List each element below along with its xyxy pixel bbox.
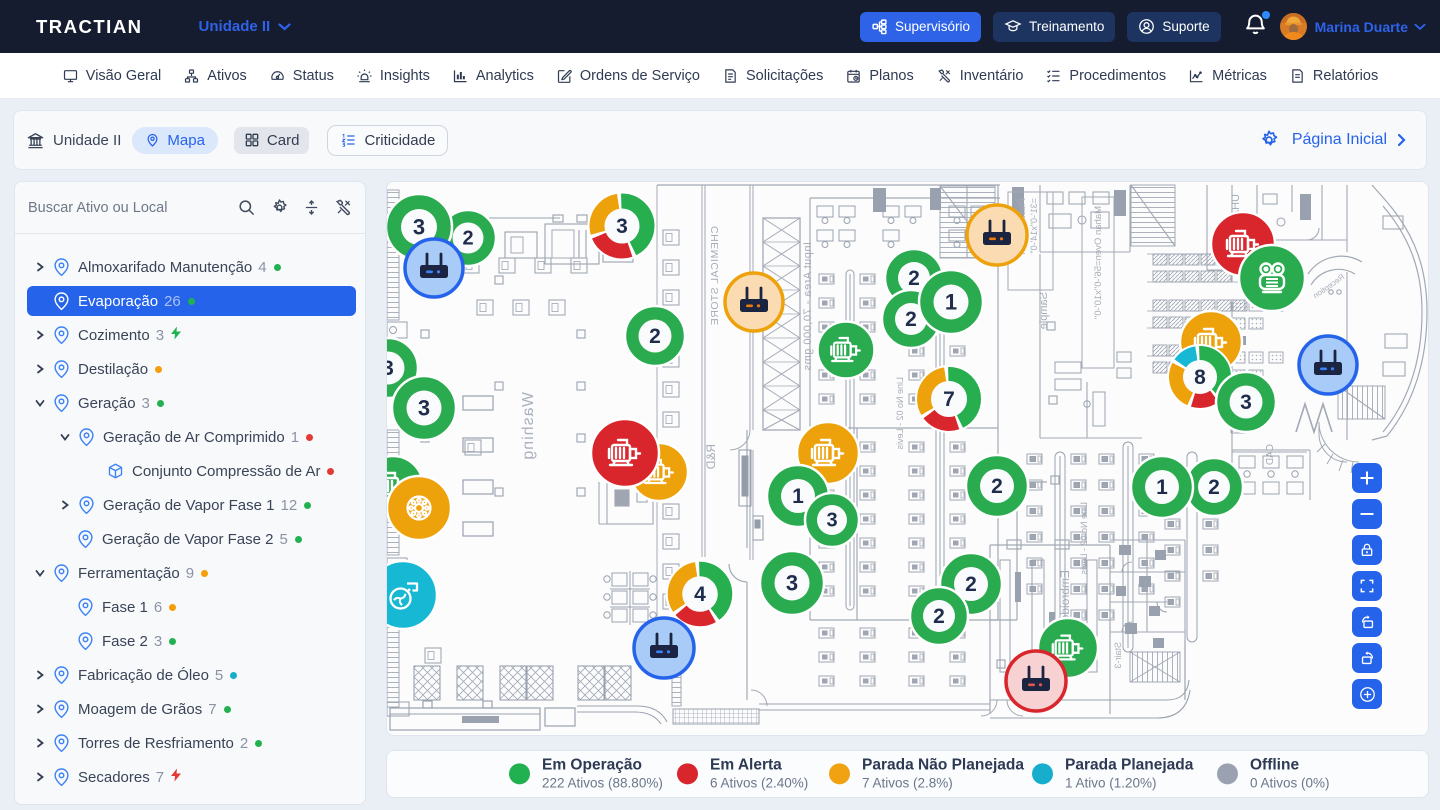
svg-text:2: 2 (905, 308, 917, 331)
svg-text:8: 8 (1194, 366, 1206, 389)
svg-text:3: 3 (413, 215, 425, 240)
svg-text:1: 1 (792, 485, 804, 508)
svg-text:2: 2 (991, 475, 1003, 498)
svg-text:R&D: R&D (704, 444, 718, 470)
svg-text:Input Area - 70,000 gms: Input Area - 70,000 gms (802, 242, 814, 371)
svg-text:3: 3 (418, 396, 430, 421)
svg-text:3: 3 (616, 215, 628, 238)
svg-text:Line No 02 - Levis: Line No 02 - Levis (895, 377, 905, 450)
svg-text:CHEMICAL STORE: CHEMICAL STORE (709, 226, 721, 326)
svg-text:Stair-3: Stair-3 (1113, 642, 1123, 669)
svg-text:2: 2 (462, 228, 473, 250)
svg-text:Sample: Sample (1038, 292, 1050, 329)
svg-text:1: 1 (1156, 476, 1168, 499)
svg-text:2: 2 (1208, 476, 1220, 499)
svg-text:4: 4 (694, 583, 706, 606)
svg-text:2: 2 (908, 267, 920, 290)
svg-text:7: 7 (943, 388, 955, 411)
svg-text:Mahan Oven=56'-0"x10'-0": Mahan Oven=56'-0"x10'-0" (1093, 206, 1104, 319)
svg-text:2: 2 (649, 325, 661, 348)
svg-text:Washing: Washing (520, 392, 537, 461)
svg-text:2: 2 (965, 573, 977, 596)
svg-text:CAD: CAD (1265, 444, 1276, 465)
svg-text:1: 1 (945, 290, 957, 315)
svg-text:2: 2 (933, 605, 945, 628)
svg-text:3: 3 (387, 357, 394, 380)
svg-text:3: 3 (1240, 391, 1252, 414)
svg-text:3: 3 (826, 510, 837, 532)
svg-text:3: 3 (786, 571, 798, 596)
svg-text:=31'-0"x14'-0": =31'-0"x14'-0" (1029, 198, 1039, 254)
